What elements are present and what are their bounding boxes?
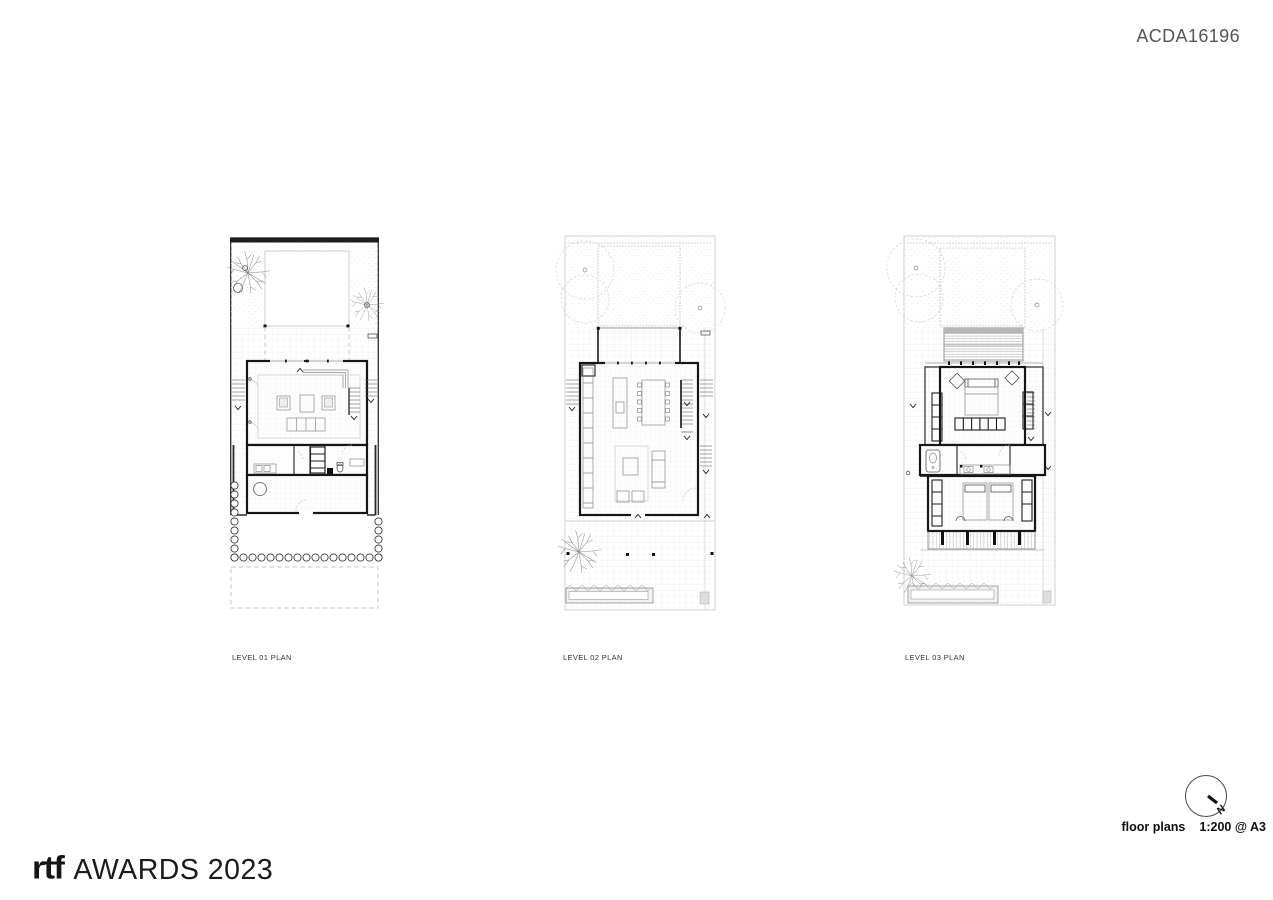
north-needle-icon xyxy=(1208,796,1217,803)
l3-balcony xyxy=(928,531,1035,549)
l1-bathroom-band xyxy=(247,445,367,475)
l2-planter xyxy=(566,586,653,604)
l3-planter xyxy=(908,584,998,604)
l3-garden xyxy=(887,237,1063,331)
award-title: AWARDS 2023 xyxy=(73,854,273,887)
l2-pad xyxy=(700,592,709,604)
plan-label-level-01: LEVEL 01 PLAN xyxy=(232,653,292,662)
rtf-logo: rtf xyxy=(32,850,63,887)
north-label: N xyxy=(1214,803,1228,817)
project-code: ACDA16196 xyxy=(1136,26,1240,47)
north-compass: N xyxy=(1183,773,1231,821)
plan-label-level-03: LEVEL 03 PLAN xyxy=(905,653,965,662)
l2-living-floor xyxy=(580,362,710,518)
drawing-title: floor plans xyxy=(1121,820,1185,834)
l1-garden xyxy=(227,243,384,328)
level-01-plan-drawing xyxy=(227,238,384,608)
l3-pad xyxy=(1043,591,1051,603)
l2-garden xyxy=(556,237,725,333)
l3-bathroom xyxy=(906,445,1045,476)
brand-footer: rtf AWARDS 2023 xyxy=(32,849,273,888)
level-02-plan-drawing xyxy=(556,236,725,610)
drawing-scale: 1:200 @ A3 xyxy=(1199,820,1266,834)
l3-louvre-roof xyxy=(944,328,1023,361)
drawing-sheet: ACDA16196 xyxy=(0,0,1273,900)
l1-living-room xyxy=(247,360,367,445)
title-block: floor plans 1:200 @ A3 xyxy=(1121,820,1266,834)
l1-future-area-dashed xyxy=(231,567,378,608)
l1-courtyard xyxy=(265,251,349,326)
level-03-plan-drawing xyxy=(887,236,1063,605)
floor-plans-drawing xyxy=(0,0,1273,700)
plan-label-level-02: LEVEL 02 PLAN xyxy=(563,653,623,662)
l3-bedroom2 xyxy=(928,476,1035,531)
